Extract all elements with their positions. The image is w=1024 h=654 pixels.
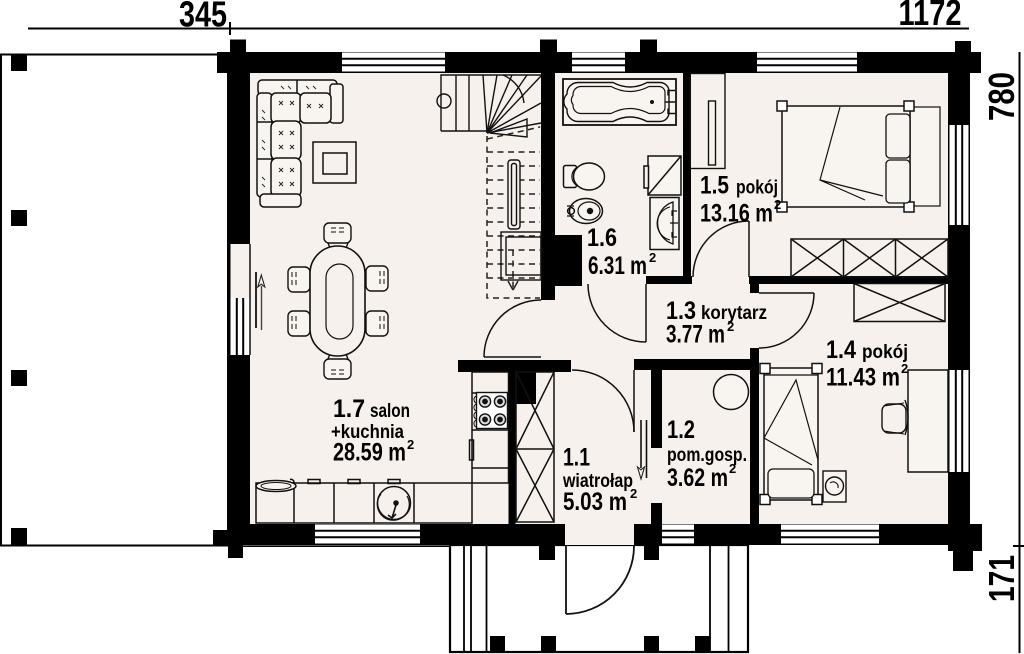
svg-text:2: 2	[774, 197, 781, 212]
svg-text:2: 2	[727, 319, 734, 334]
svg-text:1.6: 1.6	[587, 224, 617, 252]
svg-text:5.03 m: 5.03 m	[563, 488, 627, 516]
svg-text:2: 2	[407, 437, 414, 452]
svg-text:1.4: 1.4	[826, 336, 856, 364]
svg-text:1.5: 1.5	[700, 172, 729, 200]
svg-text:2: 2	[729, 461, 736, 476]
svg-text:6.31 m: 6.31 m	[588, 252, 647, 280]
svg-text:salon: salon	[370, 401, 410, 422]
svg-text:1.1: 1.1	[563, 444, 590, 472]
svg-text:2: 2	[630, 486, 637, 501]
svg-text:2: 2	[901, 361, 908, 376]
svg-text:pokój: pokój	[736, 178, 778, 199]
svg-text:13.16 m: 13.16 m	[700, 200, 773, 228]
svg-text:2: 2	[649, 250, 656, 265]
svg-text:3.77 m: 3.77 m	[666, 321, 725, 349]
svg-text:1172: 1172	[899, 0, 962, 33]
svg-text:3.62 m: 3.62 m	[667, 464, 728, 492]
svg-text:pokój: pokój	[862, 342, 908, 363]
svg-text:28.59 m: 28.59 m	[333, 439, 406, 467]
svg-text:1.7: 1.7	[333, 395, 365, 423]
svg-text:171: 171	[981, 555, 1022, 602]
svg-text:1.2: 1.2	[667, 416, 695, 444]
svg-text:345: 345	[179, 0, 227, 35]
svg-text:780: 780	[981, 72, 1022, 121]
svg-text:11.43 m: 11.43 m	[826, 364, 900, 392]
